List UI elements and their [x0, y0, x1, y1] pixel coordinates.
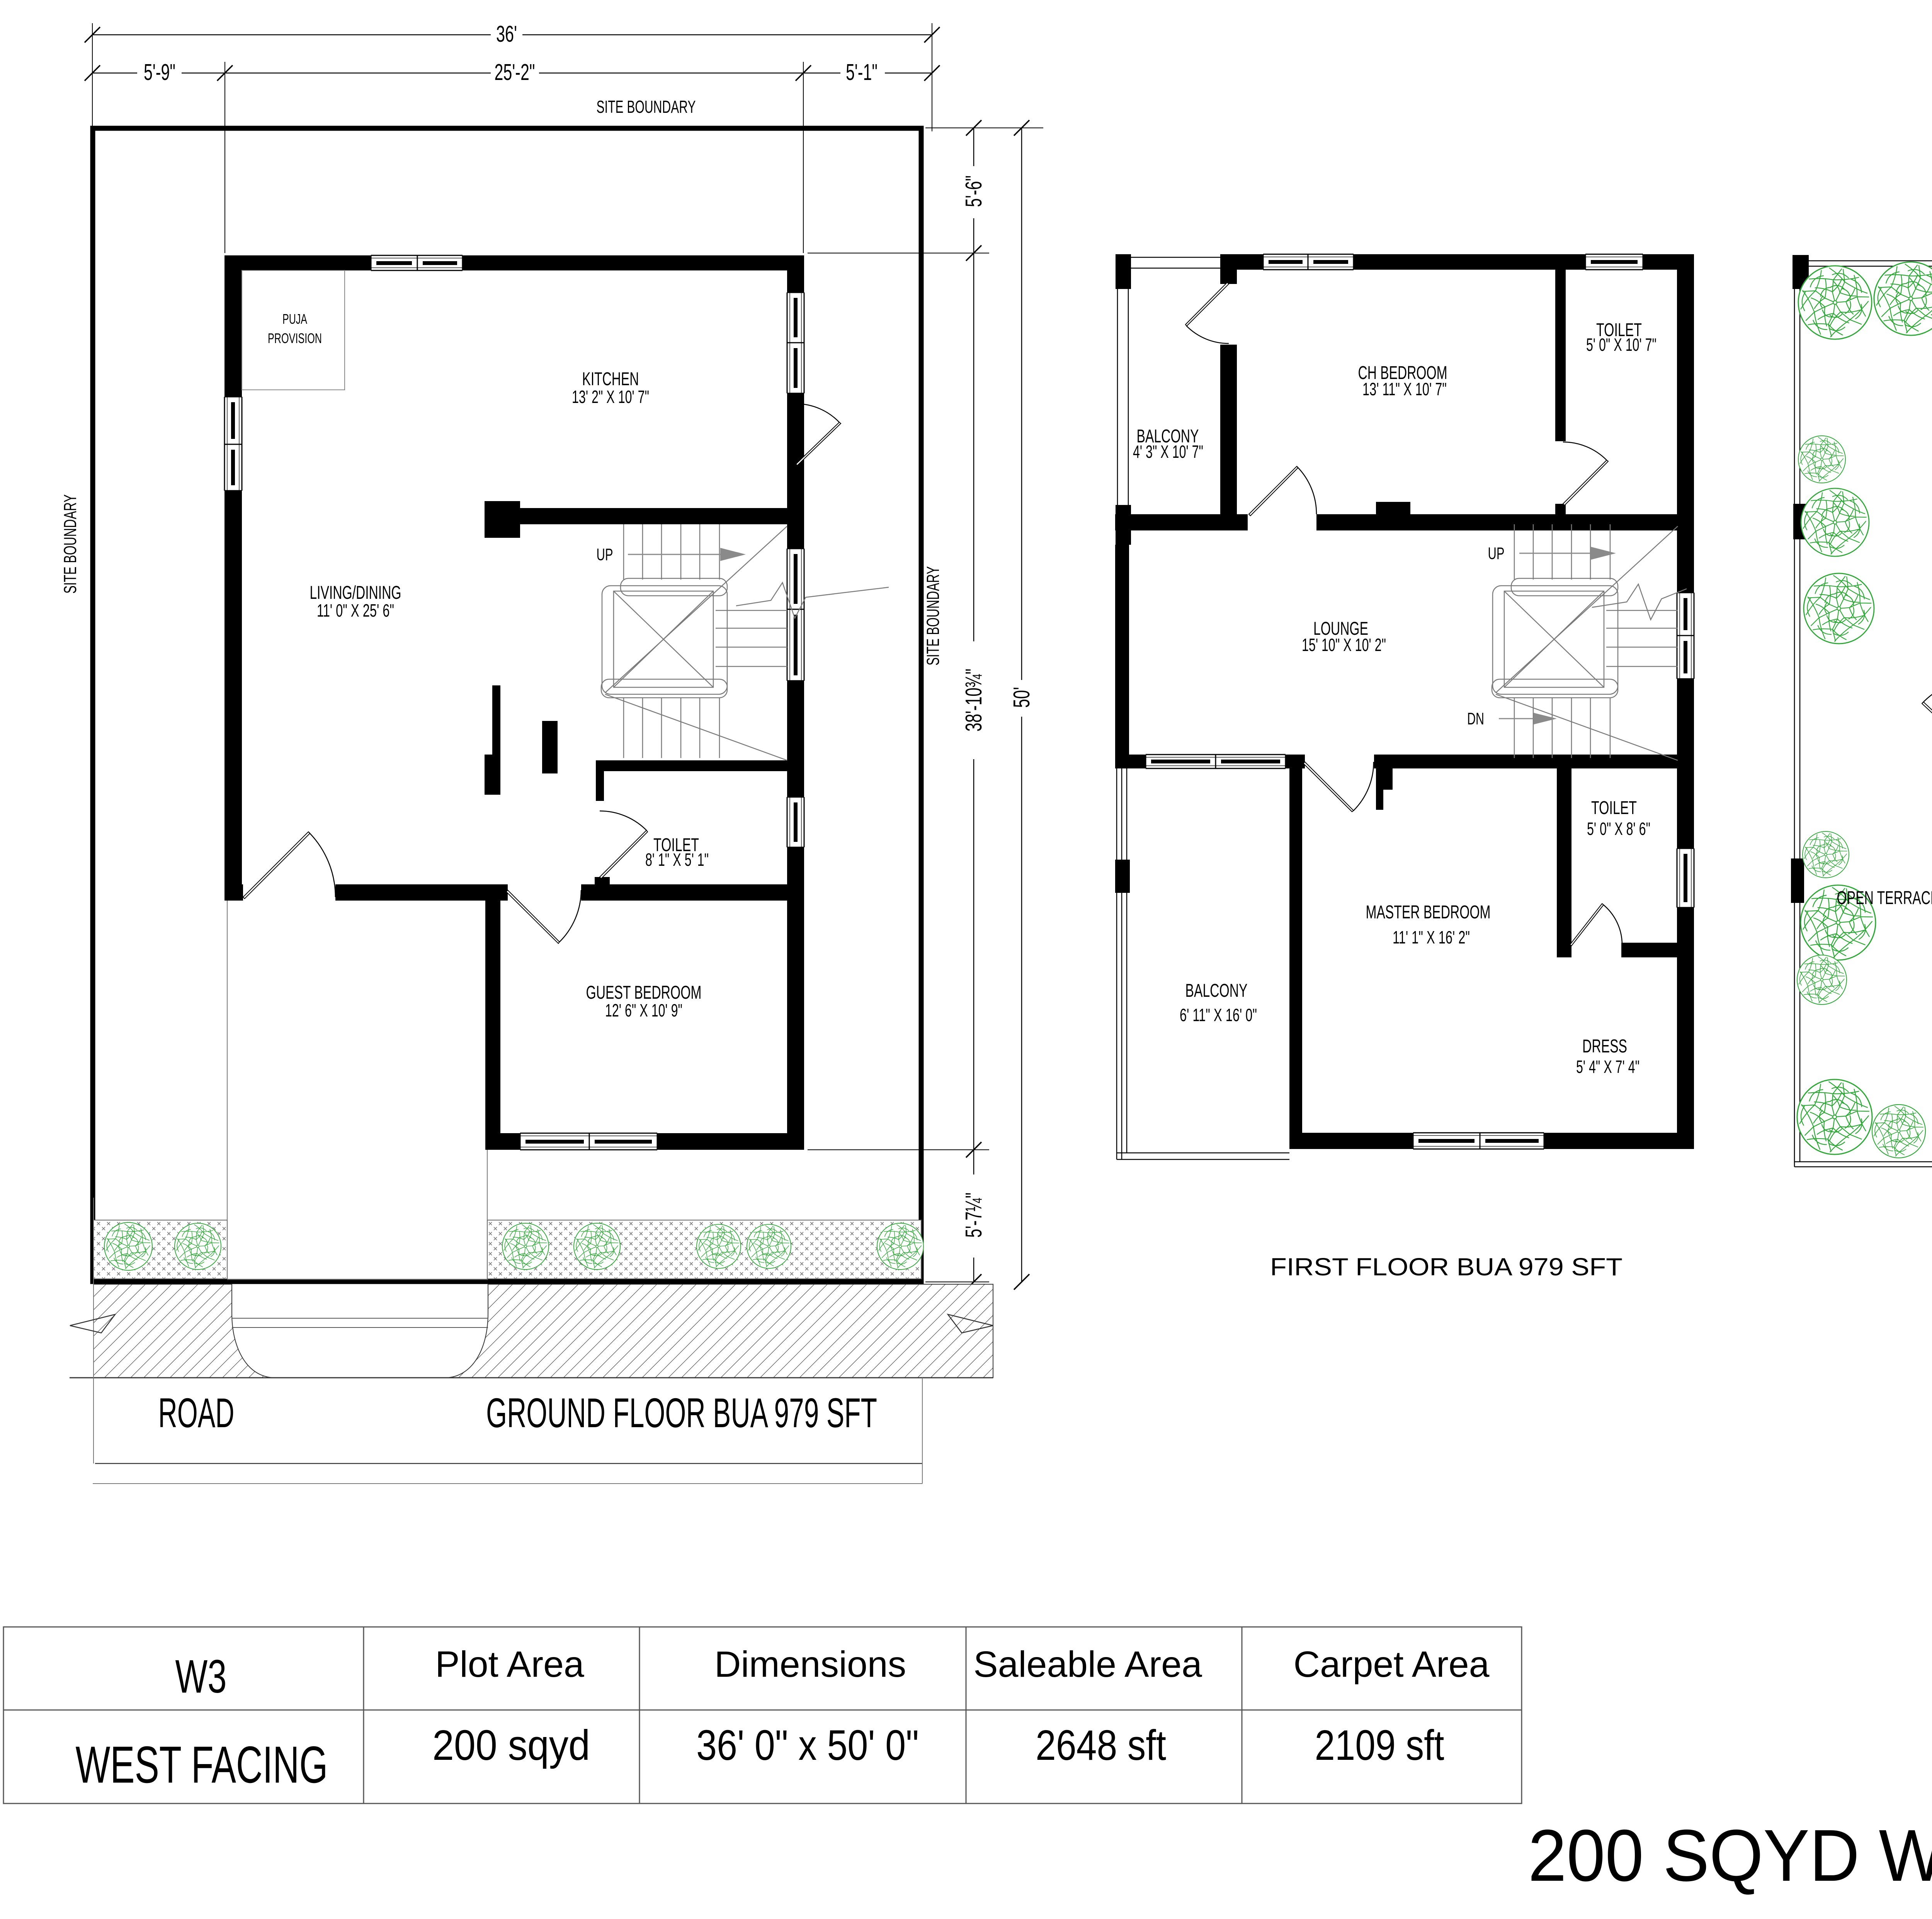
svg-text:5'-9": 5'-9" [144, 59, 175, 85]
svg-text:MASTER BEDROOM: MASTER BEDROOM [1366, 902, 1491, 923]
svg-text:BALCONY: BALCONY [1185, 981, 1248, 1001]
svg-text:5'-1": 5'-1" [846, 59, 878, 85]
svg-text:5' 0" X 8' 6": 5' 0" X 8' 6" [1587, 819, 1650, 839]
svg-text:200 sqyd: 200 sqyd [432, 1722, 590, 1769]
svg-text:DN: DN [1467, 709, 1484, 728]
svg-text:2109 sft: 2109 sft [1315, 1722, 1444, 1769]
svg-text:15' 10" X 10' 2": 15' 10" X 10' 2" [1302, 635, 1386, 655]
svg-text:8' 1" X 5' 1": 8' 1" X 5' 1" [645, 850, 709, 870]
svg-text:UP: UP [1488, 544, 1505, 563]
svg-text:UP: UP [597, 545, 613, 564]
svg-text:38'-10¾": 38'-10¾" [961, 669, 986, 732]
svg-text:5'-6": 5'-6" [961, 175, 986, 207]
svg-text:5' 4" X 7' 4": 5' 4" X 7' 4" [1576, 1057, 1639, 1077]
svg-text:13' 2" X 10' 7": 13' 2" X 10' 7" [572, 387, 649, 407]
svg-text:2648 sft: 2648 sft [1036, 1722, 1166, 1769]
svg-text:Dimensions: Dimensions [714, 1644, 906, 1685]
svg-text:4' 3" X 10' 7": 4' 3" X 10' 7" [1133, 442, 1203, 462]
svg-text:5' 0" X 10' 7": 5' 0" X 10' 7" [1586, 335, 1656, 355]
svg-text:GROUND FLOOR BUA 979 SFT: GROUND FLOOR BUA 979 SFT [486, 1389, 877, 1436]
svg-text:6' 11" X 16' 0": 6' 11" X 16' 0" [1180, 1005, 1257, 1025]
svg-text:WEST FACING: WEST FACING [76, 1735, 328, 1794]
svg-text:SITE BOUNDARY: SITE BOUNDARY [60, 495, 80, 594]
svg-text:13' 11" X 10' 7": 13' 11" X 10' 7" [1362, 379, 1447, 399]
svg-text:50': 50' [1009, 687, 1034, 708]
svg-text:TOILET: TOILET [1591, 798, 1637, 818]
svg-text:OPEN TERRACE: OPEN TERRACE [1837, 888, 1932, 908]
svg-text:200 SQYD WEST FACING REGULAR: 200 SQYD WEST FACING REGULAR [1528, 1815, 1932, 1897]
svg-text:11' 0" X 25' 6": 11' 0" X 25' 6" [317, 600, 394, 620]
svg-text:12' 6" X 10' 9": 12' 6" X 10' 9" [605, 1000, 682, 1020]
svg-text:Plot Area: Plot Area [435, 1644, 584, 1685]
svg-text:5'-7¼": 5'-7¼" [961, 1193, 986, 1238]
svg-text:36': 36' [496, 21, 517, 47]
svg-text:Saleable Area: Saleable Area [973, 1644, 1202, 1685]
svg-text:DRESS: DRESS [1582, 1036, 1627, 1057]
svg-text:SITE BOUNDARY: SITE BOUNDARY [597, 97, 696, 117]
svg-text:36' 0" x 50' 0": 36' 0" x 50' 0" [696, 1722, 919, 1769]
svg-text:Carpet Area: Carpet Area [1294, 1644, 1490, 1685]
svg-text:W3: W3 [175, 1650, 227, 1703]
svg-text:PUJA: PUJA [282, 311, 307, 327]
svg-text:25'-2": 25'-2" [495, 59, 535, 85]
svg-text:11' 1" X 16' 2": 11' 1" X 16' 2" [1393, 927, 1470, 947]
svg-text:SITE BOUNDARY: SITE BOUNDARY [923, 566, 943, 666]
svg-text:PROVISION: PROVISION [268, 330, 322, 346]
svg-text:FIRST FLOOR BUA 979 SFT: FIRST FLOOR BUA 979 SFT [1270, 1253, 1622, 1281]
svg-text:ROAD: ROAD [158, 1389, 235, 1436]
